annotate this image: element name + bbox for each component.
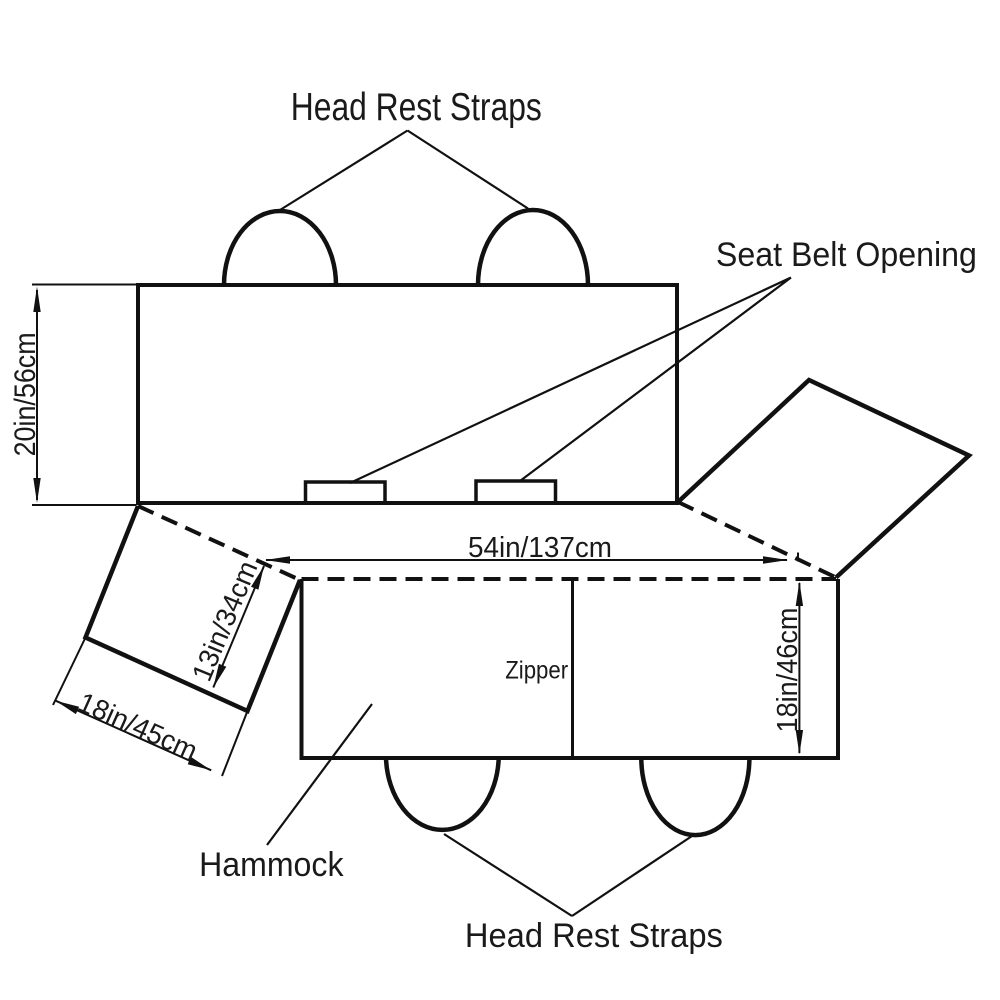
svg-text:18in/46cm: 18in/46cm xyxy=(772,608,804,733)
svg-text:20in/56cm: 20in/56cm xyxy=(9,332,42,456)
svg-text:Zipper: Zipper xyxy=(505,657,568,685)
svg-text:54in/137cm: 54in/137cm xyxy=(468,532,612,564)
svg-text:Hammock: Hammock xyxy=(199,846,344,884)
svg-text:Head Rest Straps: Head Rest Straps xyxy=(291,86,542,129)
svg-text:Head Rest Straps: Head Rest Straps xyxy=(465,917,723,955)
svg-text:Seat Belt Opening: Seat Belt Opening xyxy=(716,236,977,274)
